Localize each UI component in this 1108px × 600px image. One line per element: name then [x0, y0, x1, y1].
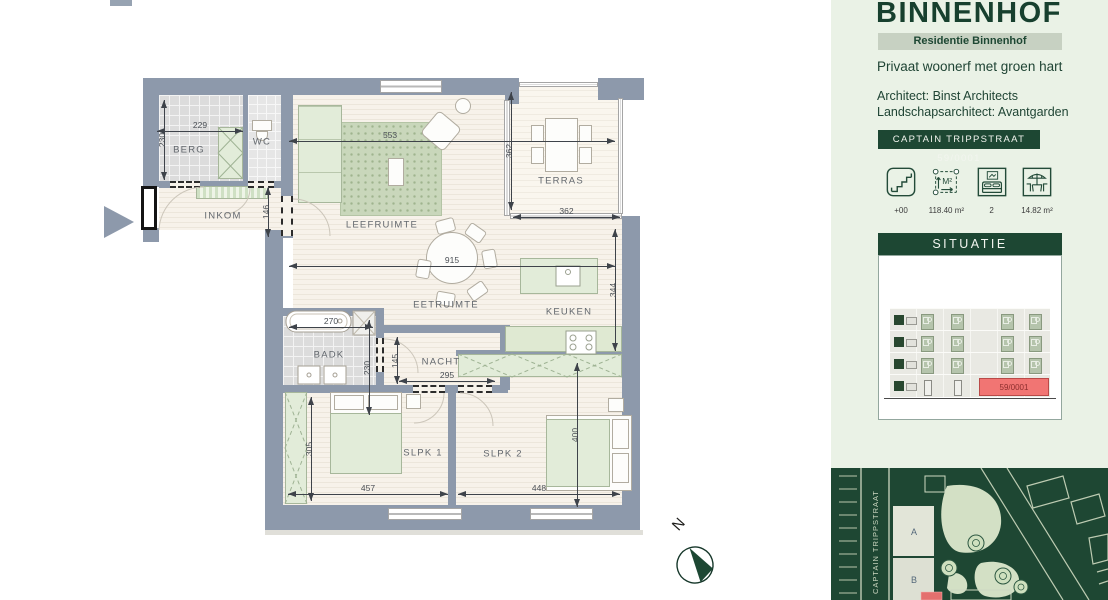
highlighted-building — [921, 592, 942, 600]
m2-glyph: M² — [943, 176, 953, 186]
stat-floor: +00 — [880, 166, 922, 215]
stat-bedrooms-label: 2 — [971, 206, 1013, 215]
project-title: BINNENHOF — [876, 0, 1062, 30]
dim-leefruimte-width: 553 — [289, 141, 615, 142]
room-label-wc: WC — [253, 137, 271, 148]
dim-berg-height: 230 — [164, 100, 165, 180]
flyer-page: 229 230 146 553 362 362 915 344 270 230 … — [0, 0, 1108, 600]
room-label-terras: TERRAS — [538, 176, 584, 187]
compass: N — [664, 505, 726, 600]
elevation-floor-row — [890, 352, 1050, 375]
room-label-eetruimte: EETRUIMTE — [413, 300, 479, 311]
situatie-header: SITUATIE — [878, 233, 1062, 255]
bed-icon — [976, 166, 1008, 198]
building-a-label: A — [911, 527, 917, 537]
elevation-floor-row — [890, 308, 1050, 331]
street-label: CAPTAIN TRIPPSTRAAT — [871, 490, 880, 594]
stats-row: +00 M² 118.40 m² — [880, 166, 1058, 215]
dim-terras-height: 362 — [511, 92, 512, 210]
architect-credits: Architect: Binst Architects Landschapsar… — [877, 89, 1069, 120]
stat-terrace-label: 14.82 m² — [1016, 206, 1058, 215]
stat-terrace: 14.82 m² — [1016, 166, 1058, 215]
dim-slpk1-height: 305 — [311, 397, 312, 501]
dim-nacht-width: 295 — [399, 381, 495, 382]
stat-area-label: 118.40 m² — [925, 206, 967, 215]
dim-inkom-height: 146 — [268, 187, 269, 237]
elevation-floor-row — [890, 330, 1050, 353]
stat-floor-label: +00 — [880, 206, 922, 215]
room-label-keuken: KEUKEN — [546, 307, 592, 318]
stat-bedrooms: 2 — [971, 166, 1013, 215]
highlighted-unit: 59/0001 — [979, 378, 1049, 396]
elevation-ground-row: 59/0001 — [890, 374, 1050, 397]
stairs-icon — [885, 166, 917, 198]
room-label-badk: BADK — [314, 350, 345, 361]
dim-slpk2-height: 400 — [577, 363, 578, 507]
ground-line — [884, 398, 1056, 399]
dim-slpk1-width: 457 — [288, 494, 448, 495]
building-b-label: B — [911, 575, 917, 585]
building-elevation: 59/0001 — [890, 308, 1050, 398]
compass-north-label: N — [669, 515, 689, 534]
dim-keuken-height: 344 — [615, 229, 616, 351]
room-label-leefruimte: LEEFRUIMTE — [346, 220, 418, 231]
stat-area: M² 118.40 m² — [925, 166, 967, 215]
architect-line: Architect: Binst Architects — [877, 89, 1069, 105]
room-label-nacht: NACHT — [422, 357, 461, 368]
dim-badk-width: 270 — [289, 327, 373, 328]
landscape-architect-line: Landschapsarchitect: Avantgarden — [877, 105, 1069, 121]
dim-nacht-height: 145 — [397, 337, 398, 384]
entrance-arrow-icon — [104, 206, 134, 238]
dim-terras-width: 362 — [513, 217, 620, 218]
room-label-slpk1: SLPK 1 — [403, 448, 442, 459]
tagline: Privaat woonerf met groen hart — [877, 59, 1062, 74]
residence-badge: Residentie Binnenhof — [878, 33, 1062, 50]
dim-badk-height: 230 — [369, 320, 370, 415]
room-label-slpk2: SLPK 2 — [483, 449, 522, 460]
situatie-panel: 59/0001 — [878, 255, 1062, 420]
terrace-icon — [1021, 166, 1053, 198]
dim-eetruimte-width: 915 — [289, 266, 615, 267]
dim-berg-width: 229 — [157, 131, 243, 132]
info-sidebar: BINNENHOF Residentie Binnenhof Privaat w… — [831, 0, 1108, 468]
address-bar: CAPTAIN TRIPPSTRAAT 59/0001 — [878, 130, 1040, 149]
site-map: CAPTAIN TRIPPSTRAAT A B — [831, 468, 1108, 600]
room-label-berg: BERG — [173, 145, 205, 156]
area-icon: M² — [930, 166, 962, 198]
room-label-inkom: INKOM — [204, 211, 241, 222]
dim-slpk2-width: 448 — [458, 494, 620, 495]
